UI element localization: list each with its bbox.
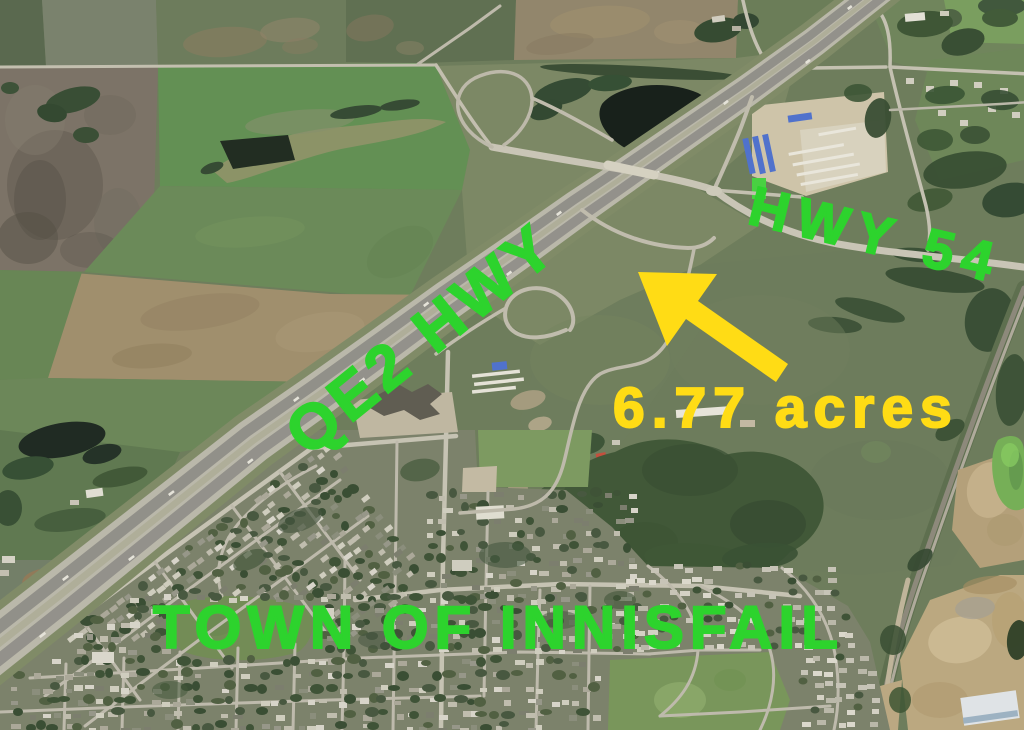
svg-text:6.77 acres: 6.77 acres — [613, 376, 959, 440]
svg-text:TOWN OF INNISFAIL: TOWN OF INNISFAIL — [153, 594, 844, 661]
